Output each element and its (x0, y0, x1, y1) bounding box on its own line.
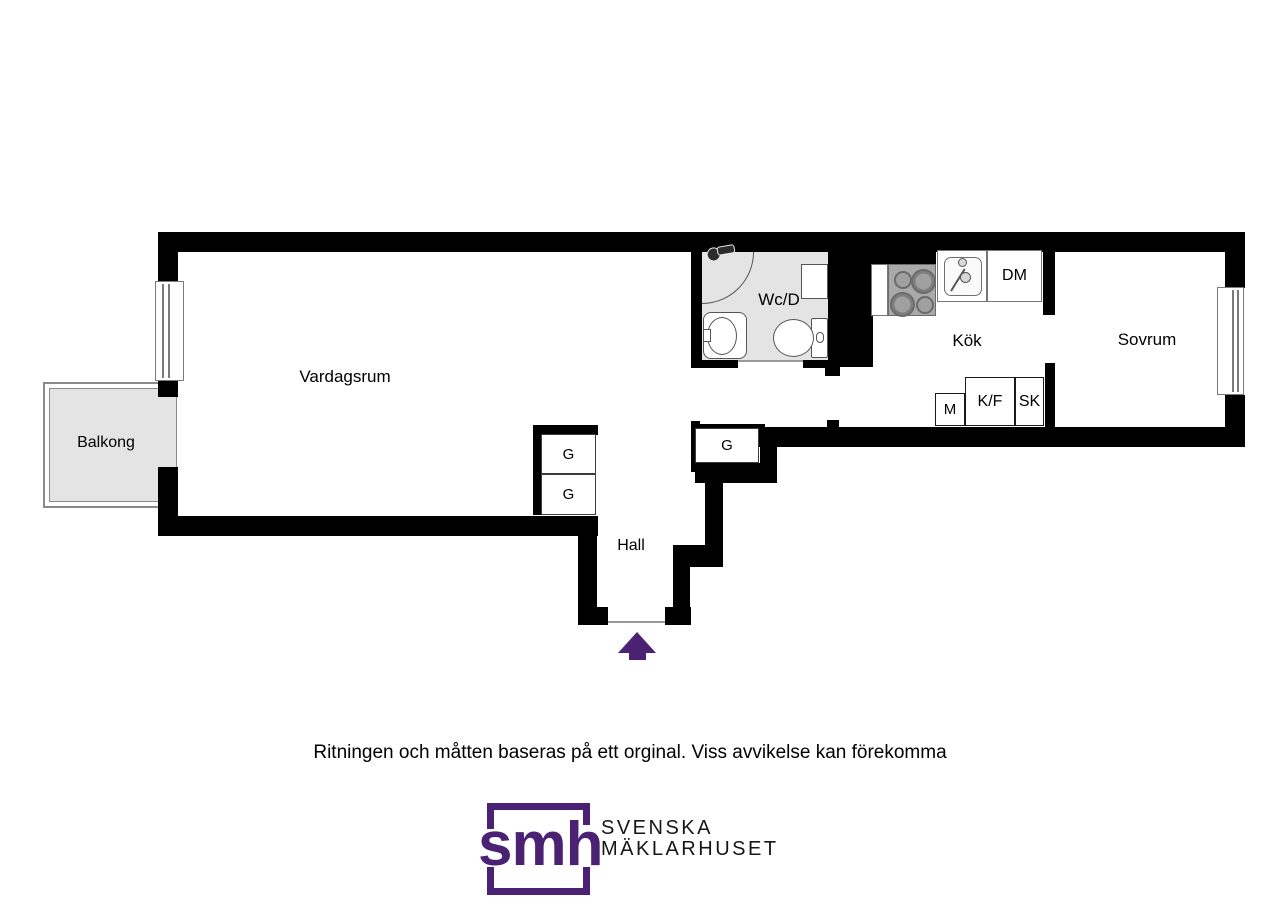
wall-segment (873, 252, 936, 264)
smh-logo: smh SVENSKA MÄKLARHUSET (470, 795, 790, 904)
logo-monogram: smh (478, 814, 600, 876)
wall-segment (705, 483, 723, 545)
logo-company-name: SVENSKA MÄKLARHUSET (601, 818, 779, 860)
dishwasher-label: DM (1002, 267, 1027, 285)
g-label: G (563, 446, 575, 463)
cupboard-box: SK (1015, 377, 1044, 426)
g-label: G (721, 437, 733, 454)
logo-company-line1: SVENSKA (601, 818, 779, 839)
window-icon (1217, 287, 1244, 395)
logo-square (487, 803, 590, 810)
washing-machine-icon (801, 264, 828, 299)
disclaimer-text: Ritningen och måtten baseras på ett orgi… (0, 742, 1260, 764)
wall-segment (827, 420, 839, 428)
kitchen-sink-icon (937, 250, 987, 302)
m-label: M (944, 401, 957, 418)
dishwasher-box: DM (987, 250, 1042, 302)
wall-segment (1043, 252, 1055, 315)
room-label-balkong: Balkong (77, 434, 135, 452)
entrance-arrow-icon (618, 632, 656, 653)
stove-icon (888, 264, 936, 316)
wall-segment (828, 252, 873, 367)
toilet-button (816, 332, 824, 343)
wall-segment (1225, 252, 1245, 288)
microwave-box: M (935, 393, 965, 426)
sink-basin (707, 317, 737, 355)
sk-label: SK (1019, 393, 1040, 411)
wall-segment (158, 516, 598, 536)
wall-segment (691, 252, 702, 368)
logo-company-line2: MÄKLARHUSET (601, 839, 779, 860)
floorplan-page: DM M K/F SK G G G Vardagsrum Balkong Wc/… (0, 0, 1280, 904)
kitchen-counter (871, 264, 888, 316)
wall-segment (578, 536, 597, 607)
kf-label: K/F (978, 393, 1003, 411)
wall-segment (1225, 395, 1245, 447)
room-label-sovrum: Sovrum (1118, 330, 1177, 350)
wall-segment (758, 427, 1245, 447)
wardrobe-box: G (541, 434, 596, 474)
wall-segment (695, 463, 777, 483)
wall-segment (158, 380, 178, 397)
fridge-freezer-box: K/F (965, 377, 1015, 426)
wall-segment (673, 545, 723, 567)
door-threshold (738, 360, 803, 362)
room-label-hall: Hall (617, 537, 645, 555)
toilet-bowl-icon (773, 319, 814, 357)
wall-segment (1045, 363, 1055, 427)
wardrobe-box: G (541, 474, 596, 515)
wall-segment (158, 252, 178, 282)
room-label-kok: Kök (952, 331, 981, 351)
room-label-wcd: Wc/D (758, 290, 800, 310)
window-icon (155, 281, 184, 381)
wall-segment (158, 232, 1245, 252)
g-label: G (563, 486, 575, 503)
wall-segment (825, 367, 840, 376)
wall-segment (691, 360, 738, 368)
sink-tap (703, 329, 711, 342)
room-label-vardagsrum: Vardagsrum (299, 367, 390, 387)
wall-segment (665, 607, 691, 625)
wall-segment (673, 567, 690, 607)
wall-segment (578, 607, 608, 625)
entrance-arrow-stem (629, 652, 646, 660)
wardrobe-box: G (695, 428, 759, 463)
entrance-threshold (608, 621, 665, 623)
